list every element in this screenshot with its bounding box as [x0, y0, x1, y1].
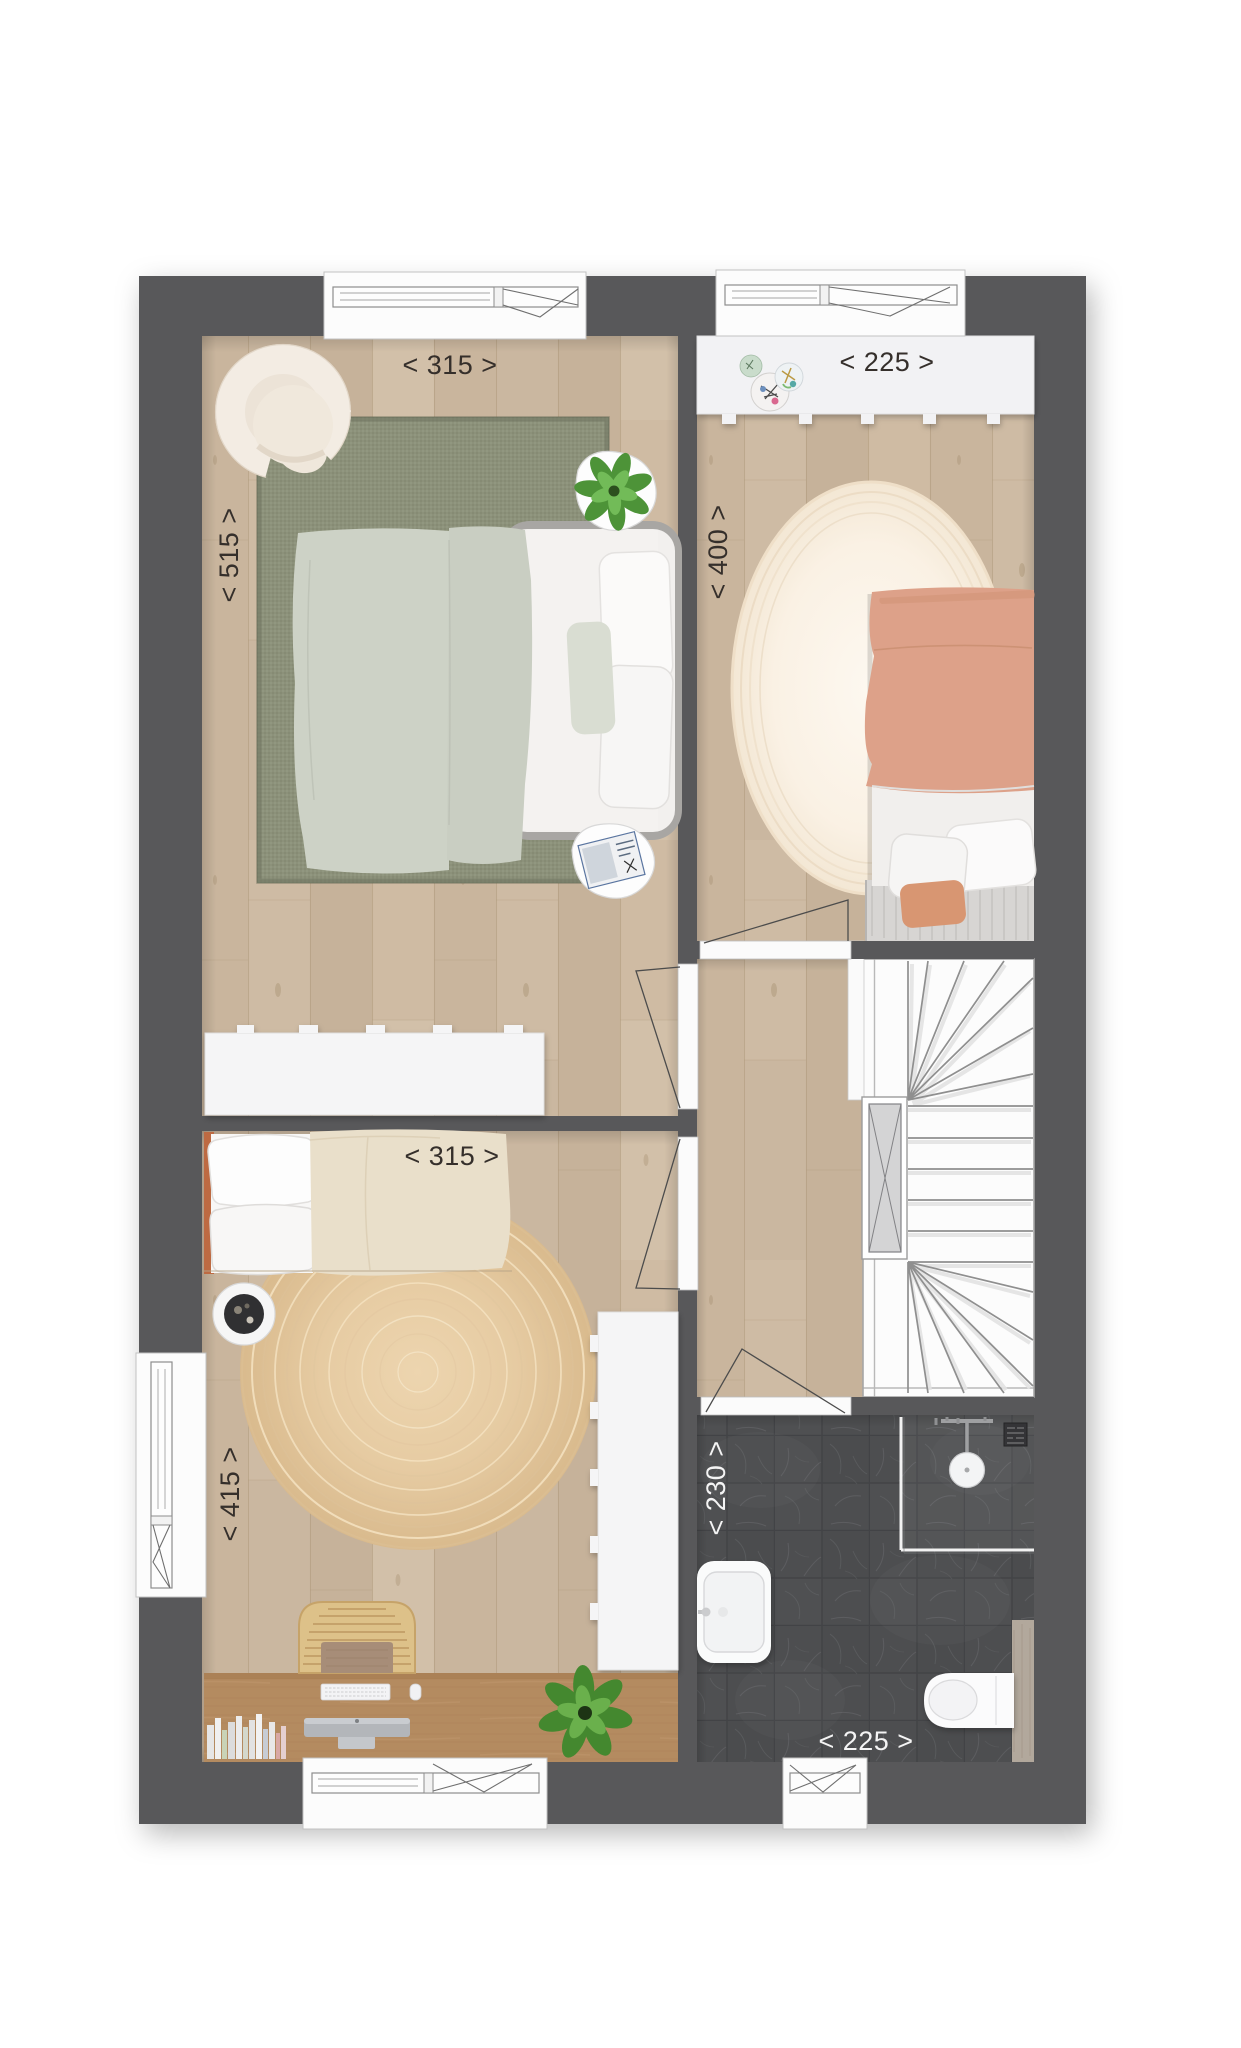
- svg-text:< 315 >: < 315 >: [404, 1141, 499, 1171]
- svg-text:< 230 >: < 230 >: [701, 1440, 731, 1535]
- svg-text:< 225 >: < 225 >: [839, 347, 934, 377]
- svg-text:< 315 >: < 315 >: [402, 350, 497, 380]
- svg-text:< 415 >: < 415 >: [215, 1446, 245, 1541]
- svg-text:< 400 >: < 400 >: [703, 504, 733, 599]
- svg-text:< 225 >: < 225 >: [818, 1726, 913, 1756]
- svg-text:< 515 >: < 515 >: [214, 507, 244, 602]
